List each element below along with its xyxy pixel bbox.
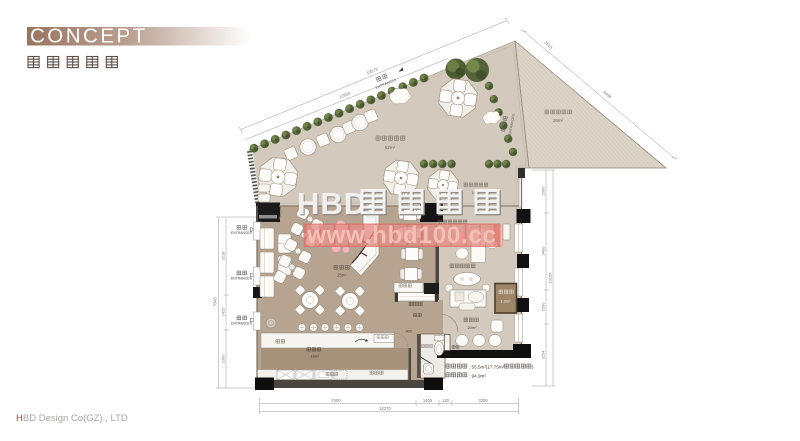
svg-text:3254: 3254 (541, 350, 546, 360)
svg-text:ENTRANCES: ENTRANCES (231, 277, 253, 281)
svg-text:120: 120 (442, 398, 450, 403)
svg-text:: 94.9m²: : 94.9m² (469, 373, 486, 378)
svg-text:ENTRANCES: ENTRANCES (231, 322, 253, 326)
svg-text:2000: 2000 (541, 186, 546, 196)
svg-text:1.2m²: 1.2m² (500, 299, 511, 304)
svg-text:www.hbd100.cc: www.hbd100.cc (306, 222, 497, 249)
svg-text:7400: 7400 (331, 398, 341, 403)
svg-text:25m²: 25m² (337, 273, 347, 278)
svg-text:3400: 3400 (541, 246, 546, 256)
svg-text:20m²: 20m² (467, 325, 477, 330)
svg-text:HBD: HBD (297, 186, 367, 221)
svg-text:2613: 2613 (543, 40, 554, 50)
svg-text:3218: 3218 (220, 251, 225, 261)
svg-text:13572: 13572 (366, 66, 379, 75)
svg-text:16m²: 16m² (311, 355, 320, 359)
svg-text:: 55.5m²(17.75m²: : 55.5m²(17.75m² (469, 365, 505, 370)
svg-text:2390: 2390 (220, 354, 225, 364)
svg-text:52m²: 52m² (385, 145, 396, 150)
svg-text:2425: 2425 (220, 307, 225, 317)
svg-text:12270: 12270 (379, 406, 391, 411)
svg-text:CONCEPT: CONCEPT (30, 25, 148, 48)
svg-text:26m²: 26m² (553, 118, 564, 123)
svg-text:3206: 3206 (478, 398, 488, 403)
svg-text:ENTRANCES: ENTRANCES (231, 231, 253, 235)
svg-text:900: 900 (406, 330, 412, 334)
svg-text:): ) (532, 365, 534, 370)
svg-text:HBD Design Co(GZ)., LTD: HBD Design Co(GZ)., LTD (16, 413, 128, 424)
svg-text:7045: 7045 (213, 297, 218, 307)
svg-text:1500: 1500 (541, 302, 546, 312)
svg-text:1405: 1405 (423, 398, 433, 403)
svg-text:10154: 10154 (548, 272, 553, 284)
